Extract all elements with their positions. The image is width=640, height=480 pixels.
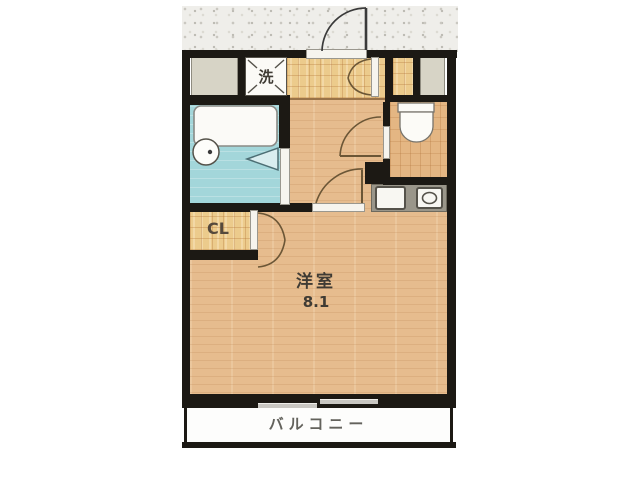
- entrance-threshold: [306, 49, 367, 59]
- wall-bathroom-bottom: [182, 203, 313, 212]
- toilet-room-floor: [390, 100, 447, 178]
- gray-block-right: [420, 57, 445, 96]
- balcony-outer-edge: [182, 442, 456, 448]
- wall-bathroom-top: [182, 95, 290, 105]
- concrete-texture-band: [182, 6, 458, 52]
- floorplan-canvas: バルコニー: [0, 0, 640, 480]
- main-room-label: 洋室: [270, 267, 362, 292]
- shoe-cabinet-frame: [371, 57, 379, 97]
- laundry-label: 洗: [245, 66, 287, 87]
- wall-right: [447, 50, 456, 408]
- wall-bathroom-right: [279, 103, 290, 148]
- main-room-label-group: 洋室 8.1: [270, 267, 362, 311]
- wall-divider-right: [413, 50, 420, 96]
- closet-label: CL: [192, 219, 244, 238]
- wall-closet-bottom: [182, 250, 258, 260]
- bathroom-door-frame: [280, 148, 290, 205]
- wall-toilet-left-upper: [383, 102, 390, 127]
- wall-divider-laundry: [238, 55, 245, 96]
- balcony-window-right-pane: [320, 399, 378, 404]
- stove-burner: [416, 187, 443, 209]
- gray-block-left: [191, 57, 238, 96]
- room-door-threshold: [312, 203, 365, 212]
- wall-kitchen-top: [383, 177, 447, 185]
- balcony: バルコニー: [184, 408, 453, 442]
- balcony-label: バルコニー: [187, 408, 450, 441]
- main-room-size: 8.1: [270, 293, 362, 311]
- closet-door-frame: [250, 210, 258, 250]
- wall-bottom: [182, 394, 456, 408]
- kitchen-sink: [375, 186, 406, 210]
- pipe-space-tile: [393, 58, 413, 96]
- wall-toilet-top: [385, 95, 447, 102]
- toilet-door-frame: [383, 126, 390, 159]
- bathroom-floor: [190, 103, 283, 206]
